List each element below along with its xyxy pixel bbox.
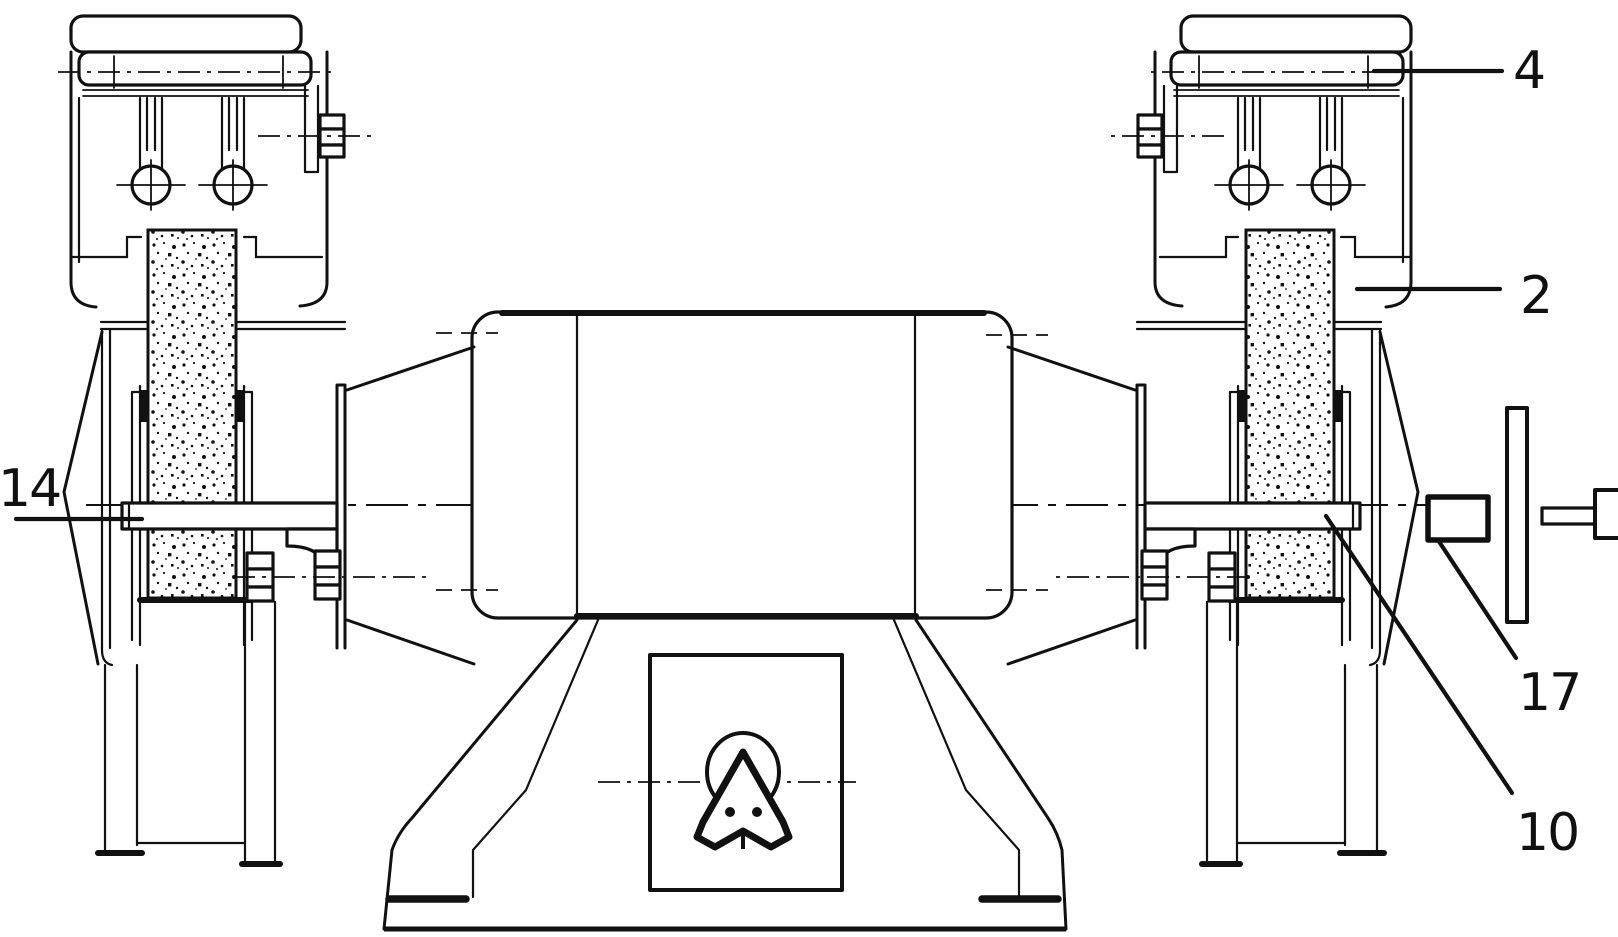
- washer-disc: [1507, 408, 1527, 622]
- bolt-head: [1595, 490, 1618, 538]
- part-label-4: 4: [1513, 41, 1544, 101]
- clamp-nut: [1428, 497, 1488, 540]
- bolt-shaft: [1542, 508, 1595, 524]
- bench-grinder-diagram: 4 2 14 17 10: [0, 0, 1618, 937]
- knob-dot: [725, 807, 735, 817]
- base-left-inner: [473, 620, 598, 897]
- label-17-leader: [1438, 540, 1516, 658]
- knob-dot: [752, 807, 762, 817]
- base-right-slant: [916, 620, 1066, 929]
- exploded-fasteners: [1428, 408, 1618, 622]
- base-pedestal: [384, 620, 1066, 929]
- part-label-14: 14: [0, 459, 60, 519]
- part-label-17: 17: [1518, 663, 1580, 723]
- switch-knob[interactable]: [697, 733, 789, 849]
- right-wheel-assembly: [1008, 16, 1424, 864]
- base-left-slant: [384, 620, 577, 929]
- motor-body: [472, 312, 1012, 618]
- label-10-leader: [1326, 516, 1512, 793]
- base-right-inner: [894, 620, 1019, 897]
- part-label-2: 2: [1520, 266, 1551, 326]
- part-label-10: 10: [1516, 803, 1578, 863]
- motor-housing: [436, 312, 1048, 618]
- diagram-page: 4 2 14 17 10: [0, 0, 1618, 937]
- left-wheel-assembly: [58, 16, 474, 864]
